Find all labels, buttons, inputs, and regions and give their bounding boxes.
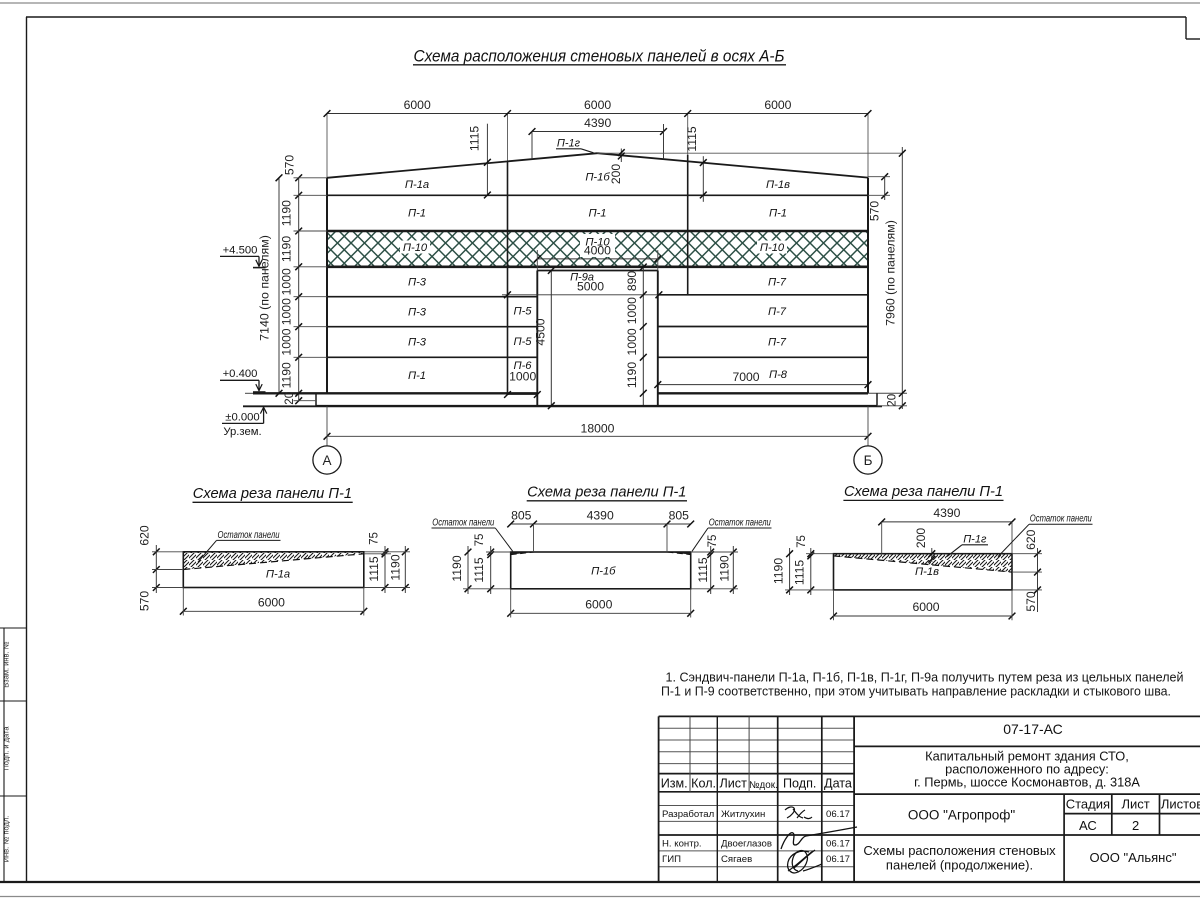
svg-text:Б: Б	[864, 453, 873, 468]
svg-text:№док.: №док.	[749, 780, 778, 791]
svg-text:П-7: П-7	[768, 337, 787, 349]
svg-text:П-10: П-10	[403, 242, 428, 254]
svg-text:П-1б: П-1б	[591, 566, 616, 578]
svg-text:6000: 6000	[258, 596, 285, 610]
svg-text:805: 805	[511, 508, 532, 522]
svg-text:Схемы расположения стеновых: Схемы расположения стеновых	[863, 843, 1056, 858]
svg-text:Дата: Дата	[824, 776, 852, 790]
svg-text:П-1 и П-9 соответственно, при: П-1 и П-9 соответственно, при этом учиты…	[661, 684, 1171, 699]
svg-text:570: 570	[138, 591, 152, 612]
svg-text:Инв. № подл.: Инв. № подл.	[2, 816, 11, 863]
svg-text:4390: 4390	[933, 506, 960, 520]
svg-text:П-8: П-8	[769, 369, 788, 381]
svg-text:18000: 18000	[581, 421, 615, 435]
svg-text:П-10: П-10	[585, 237, 610, 249]
svg-text:20: 20	[887, 394, 899, 407]
svg-text:П-1в: П-1в	[915, 566, 939, 578]
svg-text:1190: 1190	[279, 200, 293, 226]
svg-text:1190: 1190	[625, 362, 639, 388]
svg-text:П-3: П-3	[408, 306, 427, 318]
svg-text:Лист: Лист	[720, 776, 748, 790]
svg-text:П-7: П-7	[768, 276, 787, 288]
svg-text:Ур.зем.: Ур.зем.	[223, 426, 261, 438]
svg-text:г. Пермь, шоссе Космонавтов, д: г. Пермь, шоссе Космонавтов, д. 318А	[914, 774, 1140, 789]
svg-text:+0.400: +0.400	[223, 368, 258, 380]
svg-text:1115: 1115	[685, 126, 699, 152]
svg-text:Схема реза панели П-1: Схема реза панели П-1	[844, 483, 1003, 500]
svg-text:Сягаев: Сягаев	[721, 854, 752, 865]
svg-text:7140 (по панелям): 7140 (по панелям)	[257, 235, 271, 341]
svg-text:75: 75	[707, 535, 719, 548]
svg-text:7000: 7000	[732, 370, 759, 384]
svg-text:Двоеглазов: Двоеглазов	[721, 839, 772, 850]
svg-text:Подп.: Подп.	[783, 776, 816, 790]
svg-text:620: 620	[1024, 529, 1038, 550]
svg-text:4500: 4500	[534, 318, 548, 345]
svg-text:1115: 1115	[472, 557, 486, 583]
svg-text:2: 2	[1132, 818, 1139, 833]
svg-text:П-1: П-1	[588, 208, 606, 220]
svg-text:200: 200	[914, 528, 928, 549]
svg-text:+4.500: +4.500	[223, 245, 258, 257]
svg-text:75: 75	[474, 534, 486, 547]
svg-text:75: 75	[796, 535, 808, 548]
svg-text:П-1: П-1	[408, 370, 426, 382]
svg-text:1000: 1000	[625, 328, 639, 355]
svg-text:1115: 1115	[793, 560, 807, 586]
svg-text:1000: 1000	[279, 298, 293, 325]
svg-text:Взам. инв. №: Взам. инв. №	[2, 641, 11, 687]
svg-text:6000: 6000	[584, 98, 611, 112]
svg-text:4390: 4390	[587, 508, 614, 522]
svg-text:Схема расположения стеновых па: Схема расположения стеновых панелей в ос…	[414, 48, 785, 66]
svg-text:890: 890	[625, 271, 639, 292]
svg-text:Схема реза панели П-1: Схема реза панели П-1	[527, 484, 686, 501]
svg-text:ООО "Агропроф": ООО "Агропроф"	[908, 807, 1015, 822]
svg-text:07-17-АС: 07-17-АС	[1003, 721, 1063, 737]
svg-text:1000: 1000	[279, 328, 293, 355]
svg-text:П-10: П-10	[760, 242, 785, 254]
svg-text:Подп. и дата: Подп. и дата	[2, 726, 11, 771]
svg-text:П-1г: П-1г	[963, 533, 987, 545]
svg-text:П-1а: П-1а	[405, 179, 429, 191]
svg-text:Лист: Лист	[1121, 797, 1149, 812]
svg-text:П-1в: П-1в	[766, 179, 790, 191]
svg-text:1000: 1000	[279, 268, 293, 295]
svg-text:Житлухин: Житлухин	[721, 809, 765, 820]
svg-text:6000: 6000	[912, 600, 939, 614]
svg-text:1000: 1000	[625, 297, 639, 324]
svg-text:П-1: П-1	[408, 208, 426, 220]
svg-text:АС: АС	[1079, 818, 1097, 833]
svg-text:6000: 6000	[764, 98, 791, 112]
svg-text:805: 805	[669, 508, 690, 522]
svg-text:П-9а: П-9а	[570, 271, 594, 283]
svg-text:570: 570	[868, 201, 882, 222]
svg-text:П-1а: П-1а	[266, 569, 290, 581]
svg-text:±0.000: ±0.000	[225, 412, 259, 424]
svg-text:П-7: П-7	[768, 306, 787, 318]
svg-text:1190: 1190	[771, 558, 785, 584]
svg-text:Остаток панели: Остаток панели	[1030, 514, 1092, 525]
svg-text:1190: 1190	[279, 236, 293, 262]
svg-text:Разработал: Разработал	[662, 809, 714, 820]
svg-text:1190: 1190	[450, 555, 464, 581]
svg-text:П-1г: П-1г	[557, 137, 581, 149]
svg-text:А: А	[322, 453, 331, 468]
svg-text:20: 20	[284, 392, 296, 405]
svg-text:П-5: П-5	[513, 306, 532, 318]
svg-text:6000: 6000	[585, 598, 612, 612]
svg-text:Листов: Листов	[1161, 797, 1200, 812]
svg-text:06.17: 06.17	[826, 854, 850, 865]
svg-text:П-1: П-1	[769, 208, 787, 220]
svg-text:Остаток панели: Остаток панели	[218, 530, 280, 541]
svg-text:570: 570	[283, 155, 297, 176]
svg-text:Н. контр.: Н. контр.	[662, 839, 702, 850]
svg-text:Изм.: Изм.	[661, 776, 688, 790]
svg-text:1115: 1115	[367, 556, 381, 582]
svg-text:1190: 1190	[389, 554, 403, 580]
svg-text:П-3: П-3	[408, 276, 427, 288]
svg-text:панелей (продолжение).: панелей (продолжение).	[886, 858, 1033, 873]
svg-text:П-1б: П-1б	[585, 172, 610, 184]
svg-text:1190: 1190	[717, 555, 731, 581]
svg-text:ГИП: ГИП	[662, 854, 681, 865]
svg-text:1115: 1115	[467, 126, 481, 152]
svg-text:П-3: П-3	[408, 337, 427, 349]
svg-text:4390: 4390	[584, 116, 611, 130]
svg-text:6000: 6000	[404, 98, 431, 112]
svg-text:Схема реза панели П-1: Схема реза панели П-1	[193, 485, 352, 502]
svg-text:7960 (по панелям): 7960 (по панелям)	[883, 220, 897, 326]
svg-text:1115: 1115	[696, 557, 710, 583]
svg-text:1. Сэндвич-панели П-1а, П-1б,: 1. Сэндвич-панели П-1а, П-1б, П-1в, П-1г…	[666, 670, 1184, 685]
svg-text:Стадия: Стадия	[1066, 797, 1110, 812]
svg-text:1190: 1190	[279, 362, 293, 388]
svg-text:Кол.: Кол.	[691, 776, 716, 790]
svg-text:06.17: 06.17	[826, 809, 850, 820]
svg-text:Остаток панели: Остаток панели	[709, 517, 771, 528]
svg-text:П-5: П-5	[513, 336, 532, 348]
svg-text:Остаток панели: Остаток панели	[432, 517, 494, 528]
svg-text:75: 75	[369, 532, 381, 545]
svg-text:570: 570	[1024, 591, 1038, 612]
svg-text:620: 620	[138, 525, 152, 546]
svg-text:06.17: 06.17	[826, 839, 850, 850]
svg-text:200: 200	[609, 164, 623, 185]
svg-text:ООО "Альянс": ООО "Альянс"	[1090, 850, 1177, 865]
svg-text:1000: 1000	[509, 370, 536, 384]
